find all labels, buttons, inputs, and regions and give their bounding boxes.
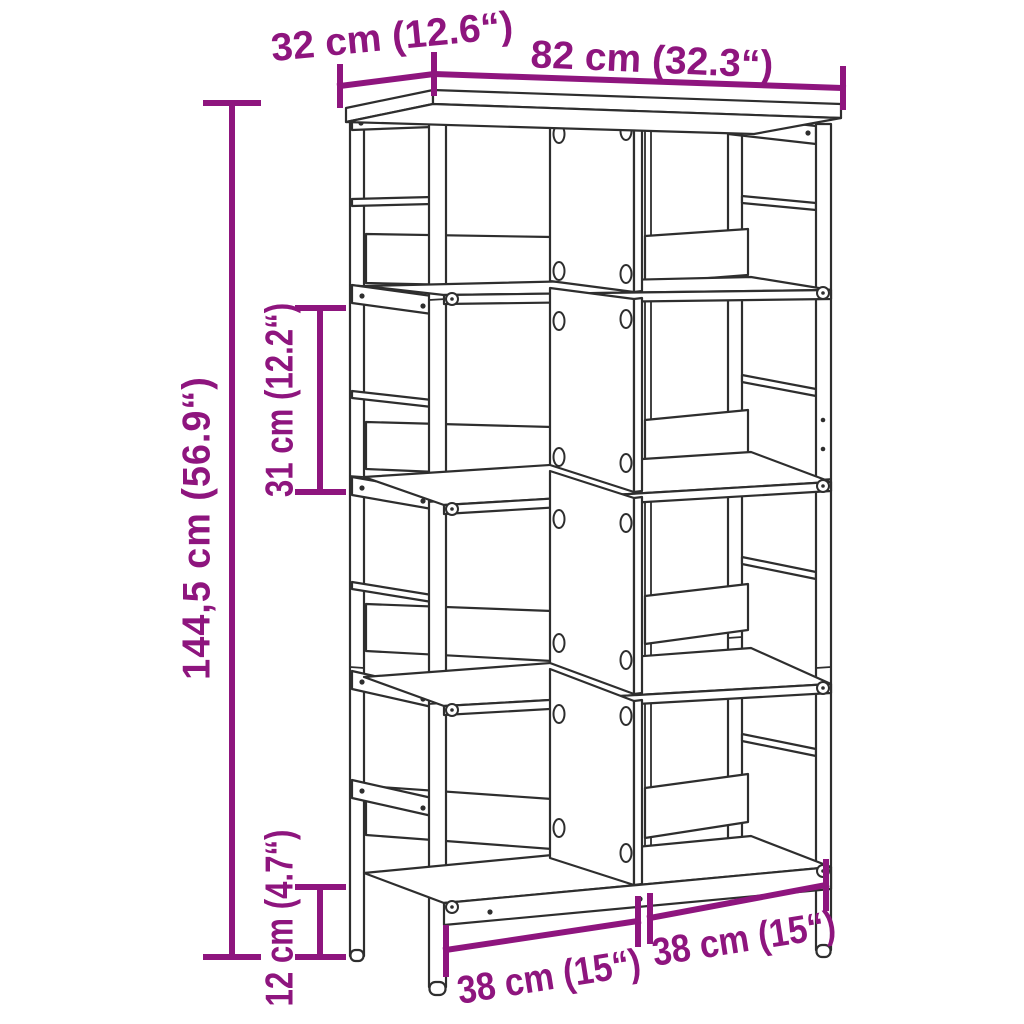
- dimension-label-shelf-spacing: 31 cm (12.2“): [261, 303, 300, 497]
- center-divider: [550, 108, 642, 885]
- front-right-leg: [816, 124, 831, 957]
- dimension-label-width: 82 cm (32.3“): [530, 35, 774, 85]
- shelving-unit: [346, 90, 841, 995]
- furniture-line-drawing: [0, 0, 1024, 1024]
- ground-clearance-dimension-line: [298, 887, 343, 957]
- product-dimension-diagram: 32 cm (12.6“) 82 cm (32.3“) 144,5 cm (56…: [0, 0, 1024, 1024]
- dimension-label-ground-clearance: 12 cm (4.7“): [261, 830, 300, 1007]
- dimension-label-height: 144,5 cm (56.9“): [178, 376, 217, 680]
- front-left-leg: [429, 101, 446, 995]
- back-left-leg: [350, 110, 364, 961]
- shelf-spacing-dimension-line: [298, 308, 343, 492]
